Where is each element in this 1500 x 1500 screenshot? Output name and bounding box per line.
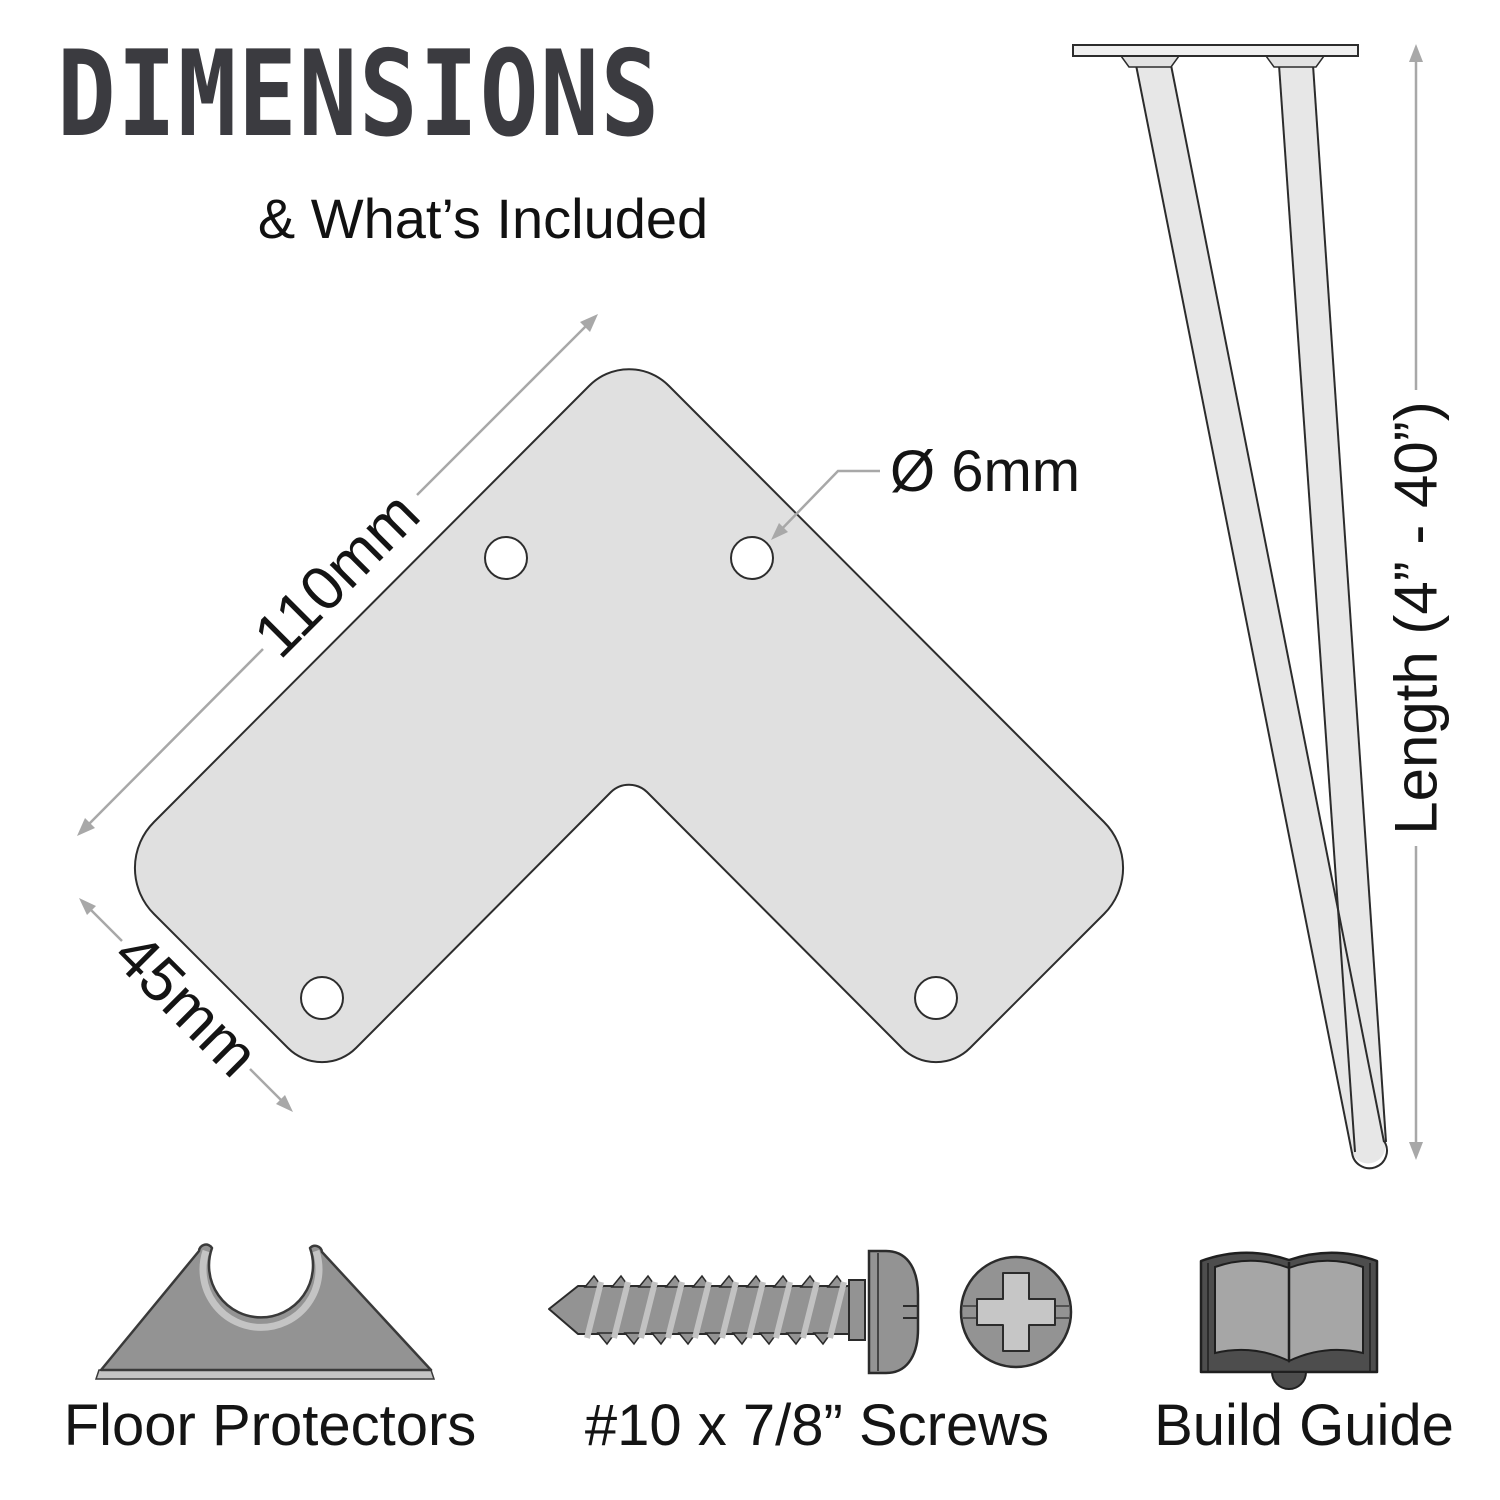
plate-hole-bottom-left — [301, 977, 343, 1019]
arrowhead — [1409, 1142, 1423, 1160]
screws-label: #10 x 7/8” Screws — [567, 1392, 1067, 1459]
page-title: DIMENSIONS — [57, 36, 661, 155]
phillips-head-icon — [961, 1257, 1071, 1367]
protector-body — [101, 1245, 431, 1370]
floor-protector-icon — [96, 1245, 434, 1379]
leg-weld-pad-left — [1121, 56, 1179, 67]
screw-head-side — [869, 1251, 918, 1373]
protector-base — [96, 1370, 434, 1379]
leg-length-dimension-label: Length (4” - 40”) — [1382, 401, 1451, 835]
plate-hole-top-right — [731, 537, 773, 579]
book-page-right — [1289, 1261, 1363, 1361]
diagram-graphics — [0, 0, 1500, 1500]
arrowhead — [1409, 44, 1423, 62]
hole-diameter-label: Ø 6mm — [890, 438, 1080, 505]
floor-protectors-label: Floor Protectors — [50, 1392, 490, 1459]
plate-hole-bottom-right — [915, 977, 957, 1019]
plate-hole-top-left — [485, 537, 527, 579]
build-guide-label: Build Guide — [1129, 1392, 1479, 1459]
screw-icon — [549, 1251, 1071, 1373]
build-guide-book-icon — [1201, 1253, 1377, 1389]
leg-weld-pad-right — [1266, 56, 1324, 67]
book-page-left — [1215, 1261, 1289, 1361]
hairpin-leg-drawing — [1073, 45, 1387, 1168]
dimensions-infographic: DIMENSIONS & What’s Included 110mm 45mm … — [0, 0, 1500, 1500]
page-subtitle: & What’s Included — [233, 186, 733, 251]
leg-top-plate — [1073, 45, 1358, 56]
